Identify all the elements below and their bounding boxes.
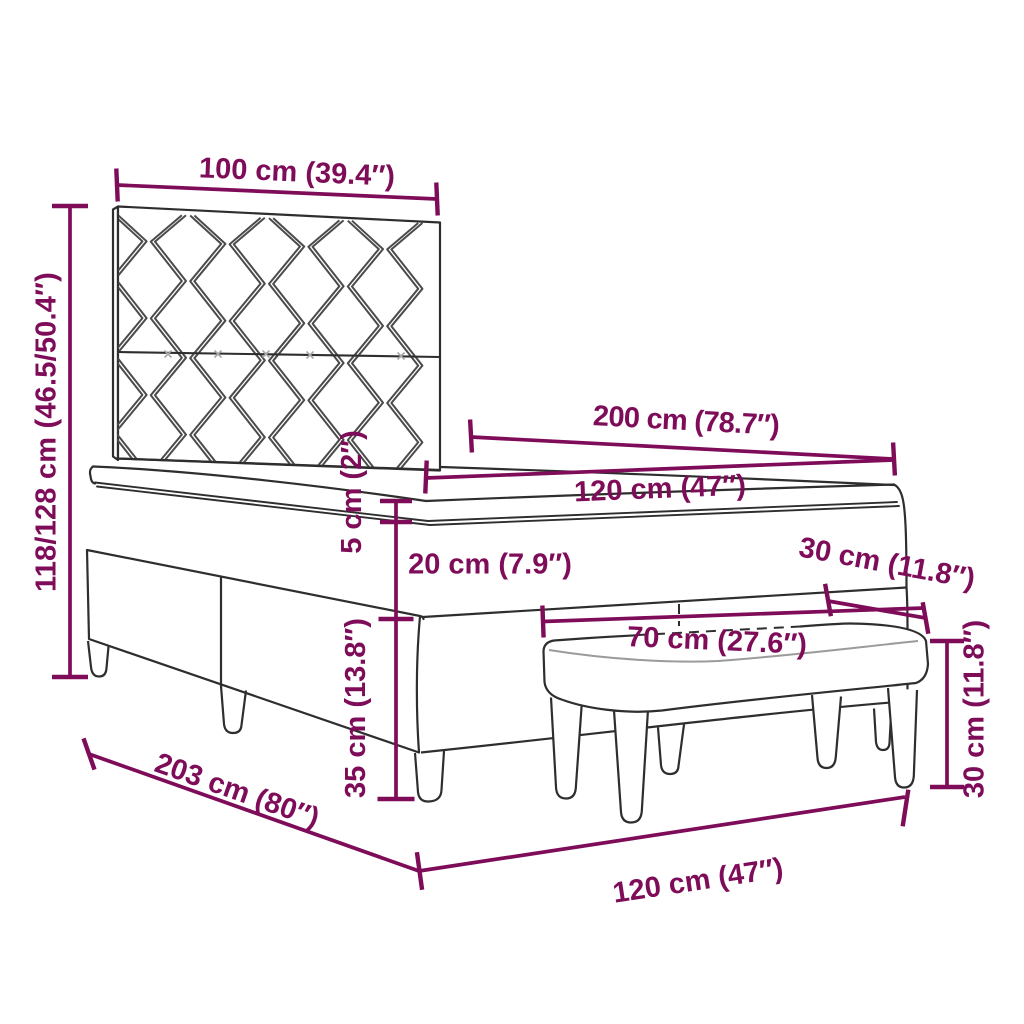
svg-text:30 cm (11.8″): 30 cm (11.8″) [959,620,991,798]
svg-text:5 cm (2″): 5 cm (2″) [336,430,368,554]
svg-text:35 cm (13.8″): 35 cm (13.8″) [340,618,372,798]
svg-text:20 cm (7.9″): 20 cm (7.9″) [408,549,572,581]
svg-text:118/128 cm (46.5/50.4″): 118/128 cm (46.5/50.4″) [31,272,63,592]
